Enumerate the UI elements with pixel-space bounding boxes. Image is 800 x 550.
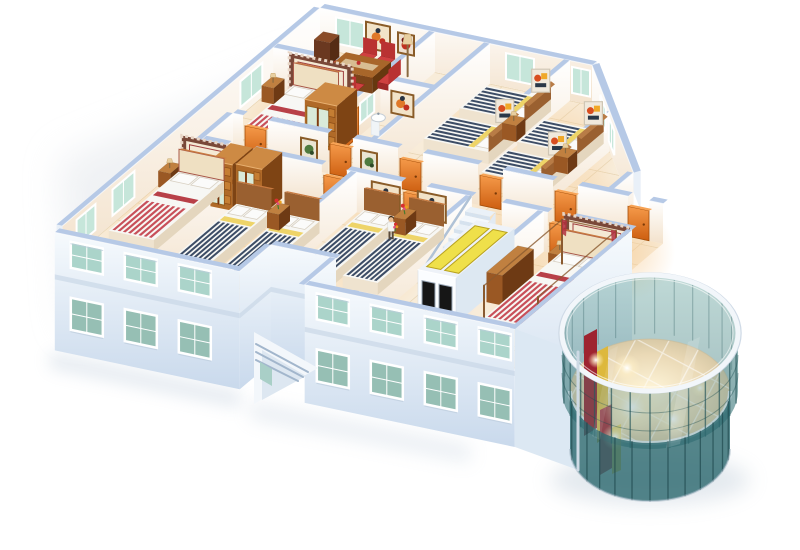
exwin-117	[317, 293, 349, 326]
exwin-114	[71, 298, 103, 339]
door-66	[480, 174, 504, 210]
winint-33	[572, 67, 590, 97]
exwin-111	[71, 242, 103, 275]
winint-32	[506, 53, 534, 85]
glass-atrium	[559, 273, 741, 501]
exwin-118	[371, 305, 403, 338]
floorplan-render	[0, 0, 800, 550]
exwin-120	[479, 327, 511, 360]
winint-31	[336, 17, 364, 49]
exwin-115	[125, 309, 157, 350]
exwin-112	[125, 253, 157, 286]
exwin-124	[479, 383, 511, 424]
floorplan-svg	[0, 0, 800, 550]
door-65	[400, 157, 424, 193]
exwin-122	[371, 361, 403, 402]
exwin-119	[425, 316, 457, 349]
exwin-123	[425, 372, 457, 413]
exwin-121	[317, 349, 349, 390]
exwin-116	[179, 320, 211, 361]
painting-42	[391, 91, 413, 118]
exwin-113	[179, 264, 211, 297]
